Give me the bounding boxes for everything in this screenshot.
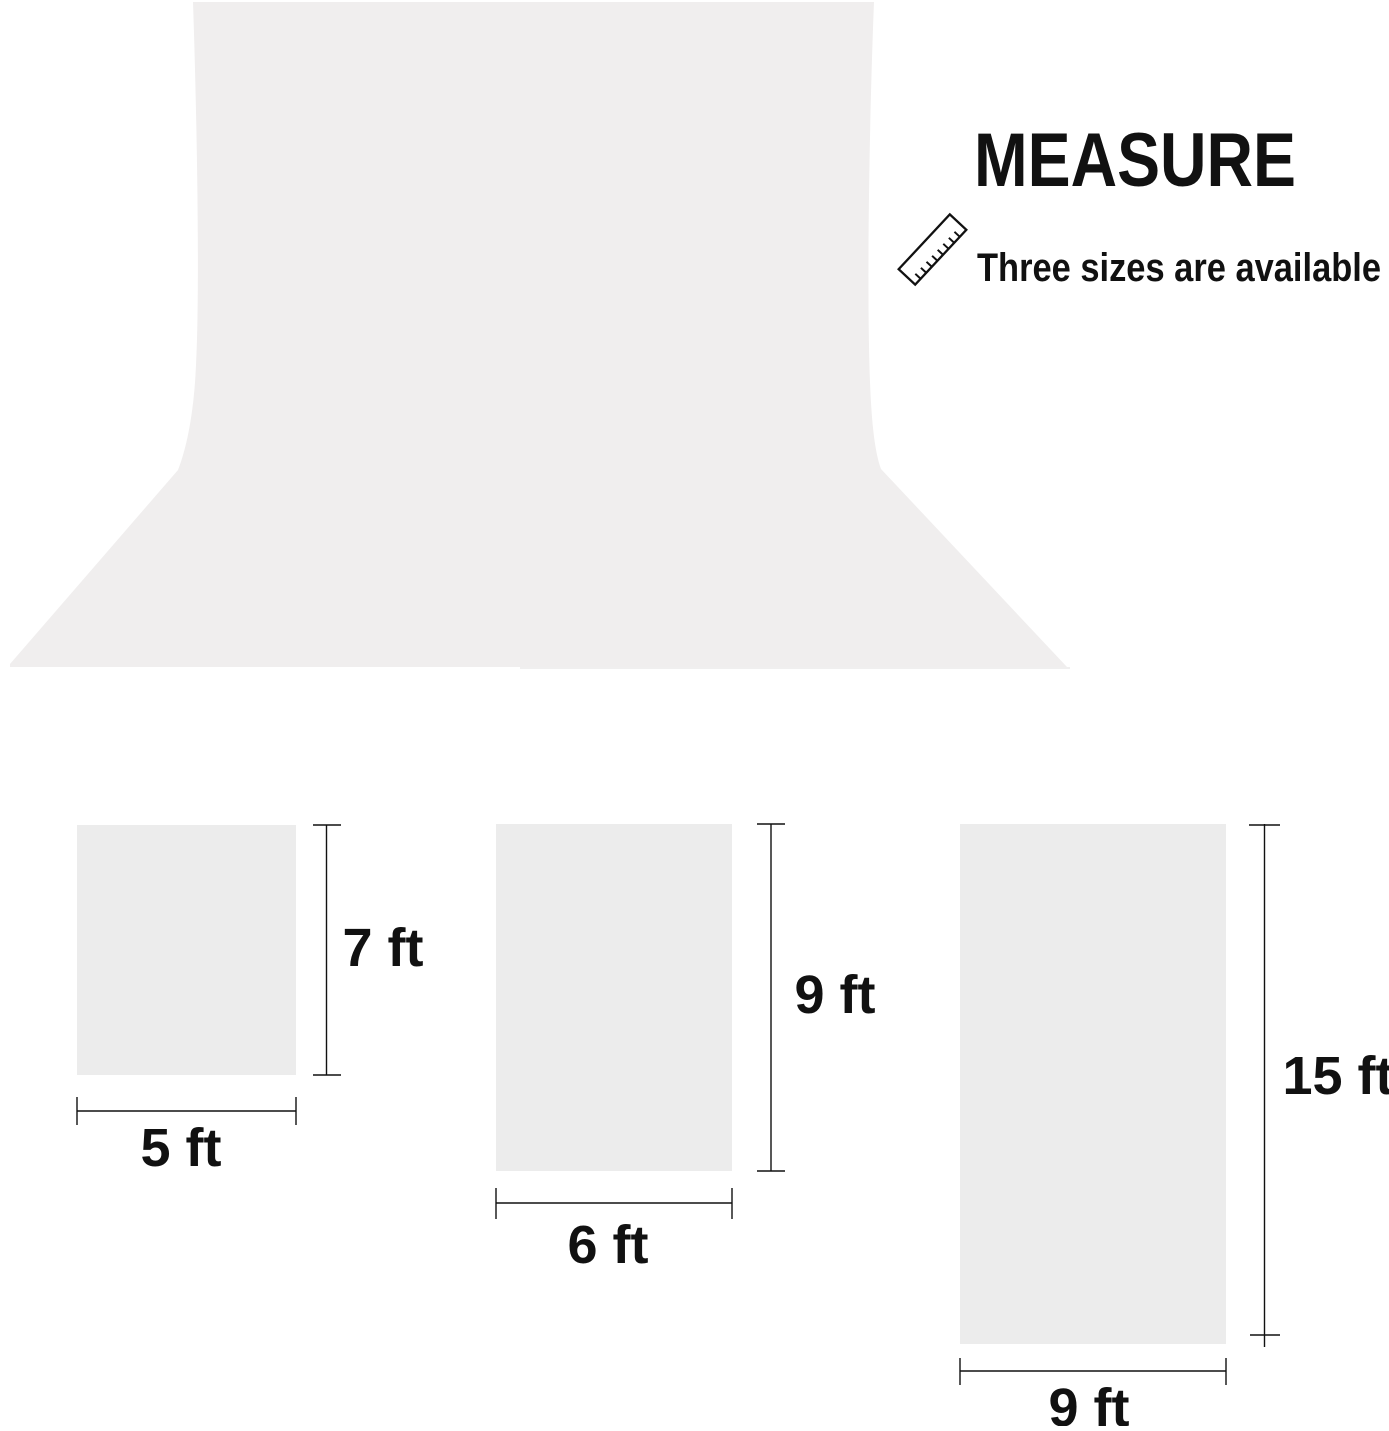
svg-text:5 ft: 5 ft <box>141 1118 222 1178</box>
svg-text:15 ft: 15 ft <box>1282 1046 1389 1106</box>
svg-text:MEASURE: MEASURE <box>974 118 1296 203</box>
svg-text:9 ft: 9 ft <box>1049 1378 1130 1426</box>
svg-text:6 ft: 6 ft <box>568 1215 649 1275</box>
svg-text:9 ft: 9 ft <box>795 965 876 1025</box>
svg-text:Three sizes are available: Three sizes are available <box>977 246 1381 290</box>
svg-text:7 ft: 7 ft <box>343 918 424 978</box>
